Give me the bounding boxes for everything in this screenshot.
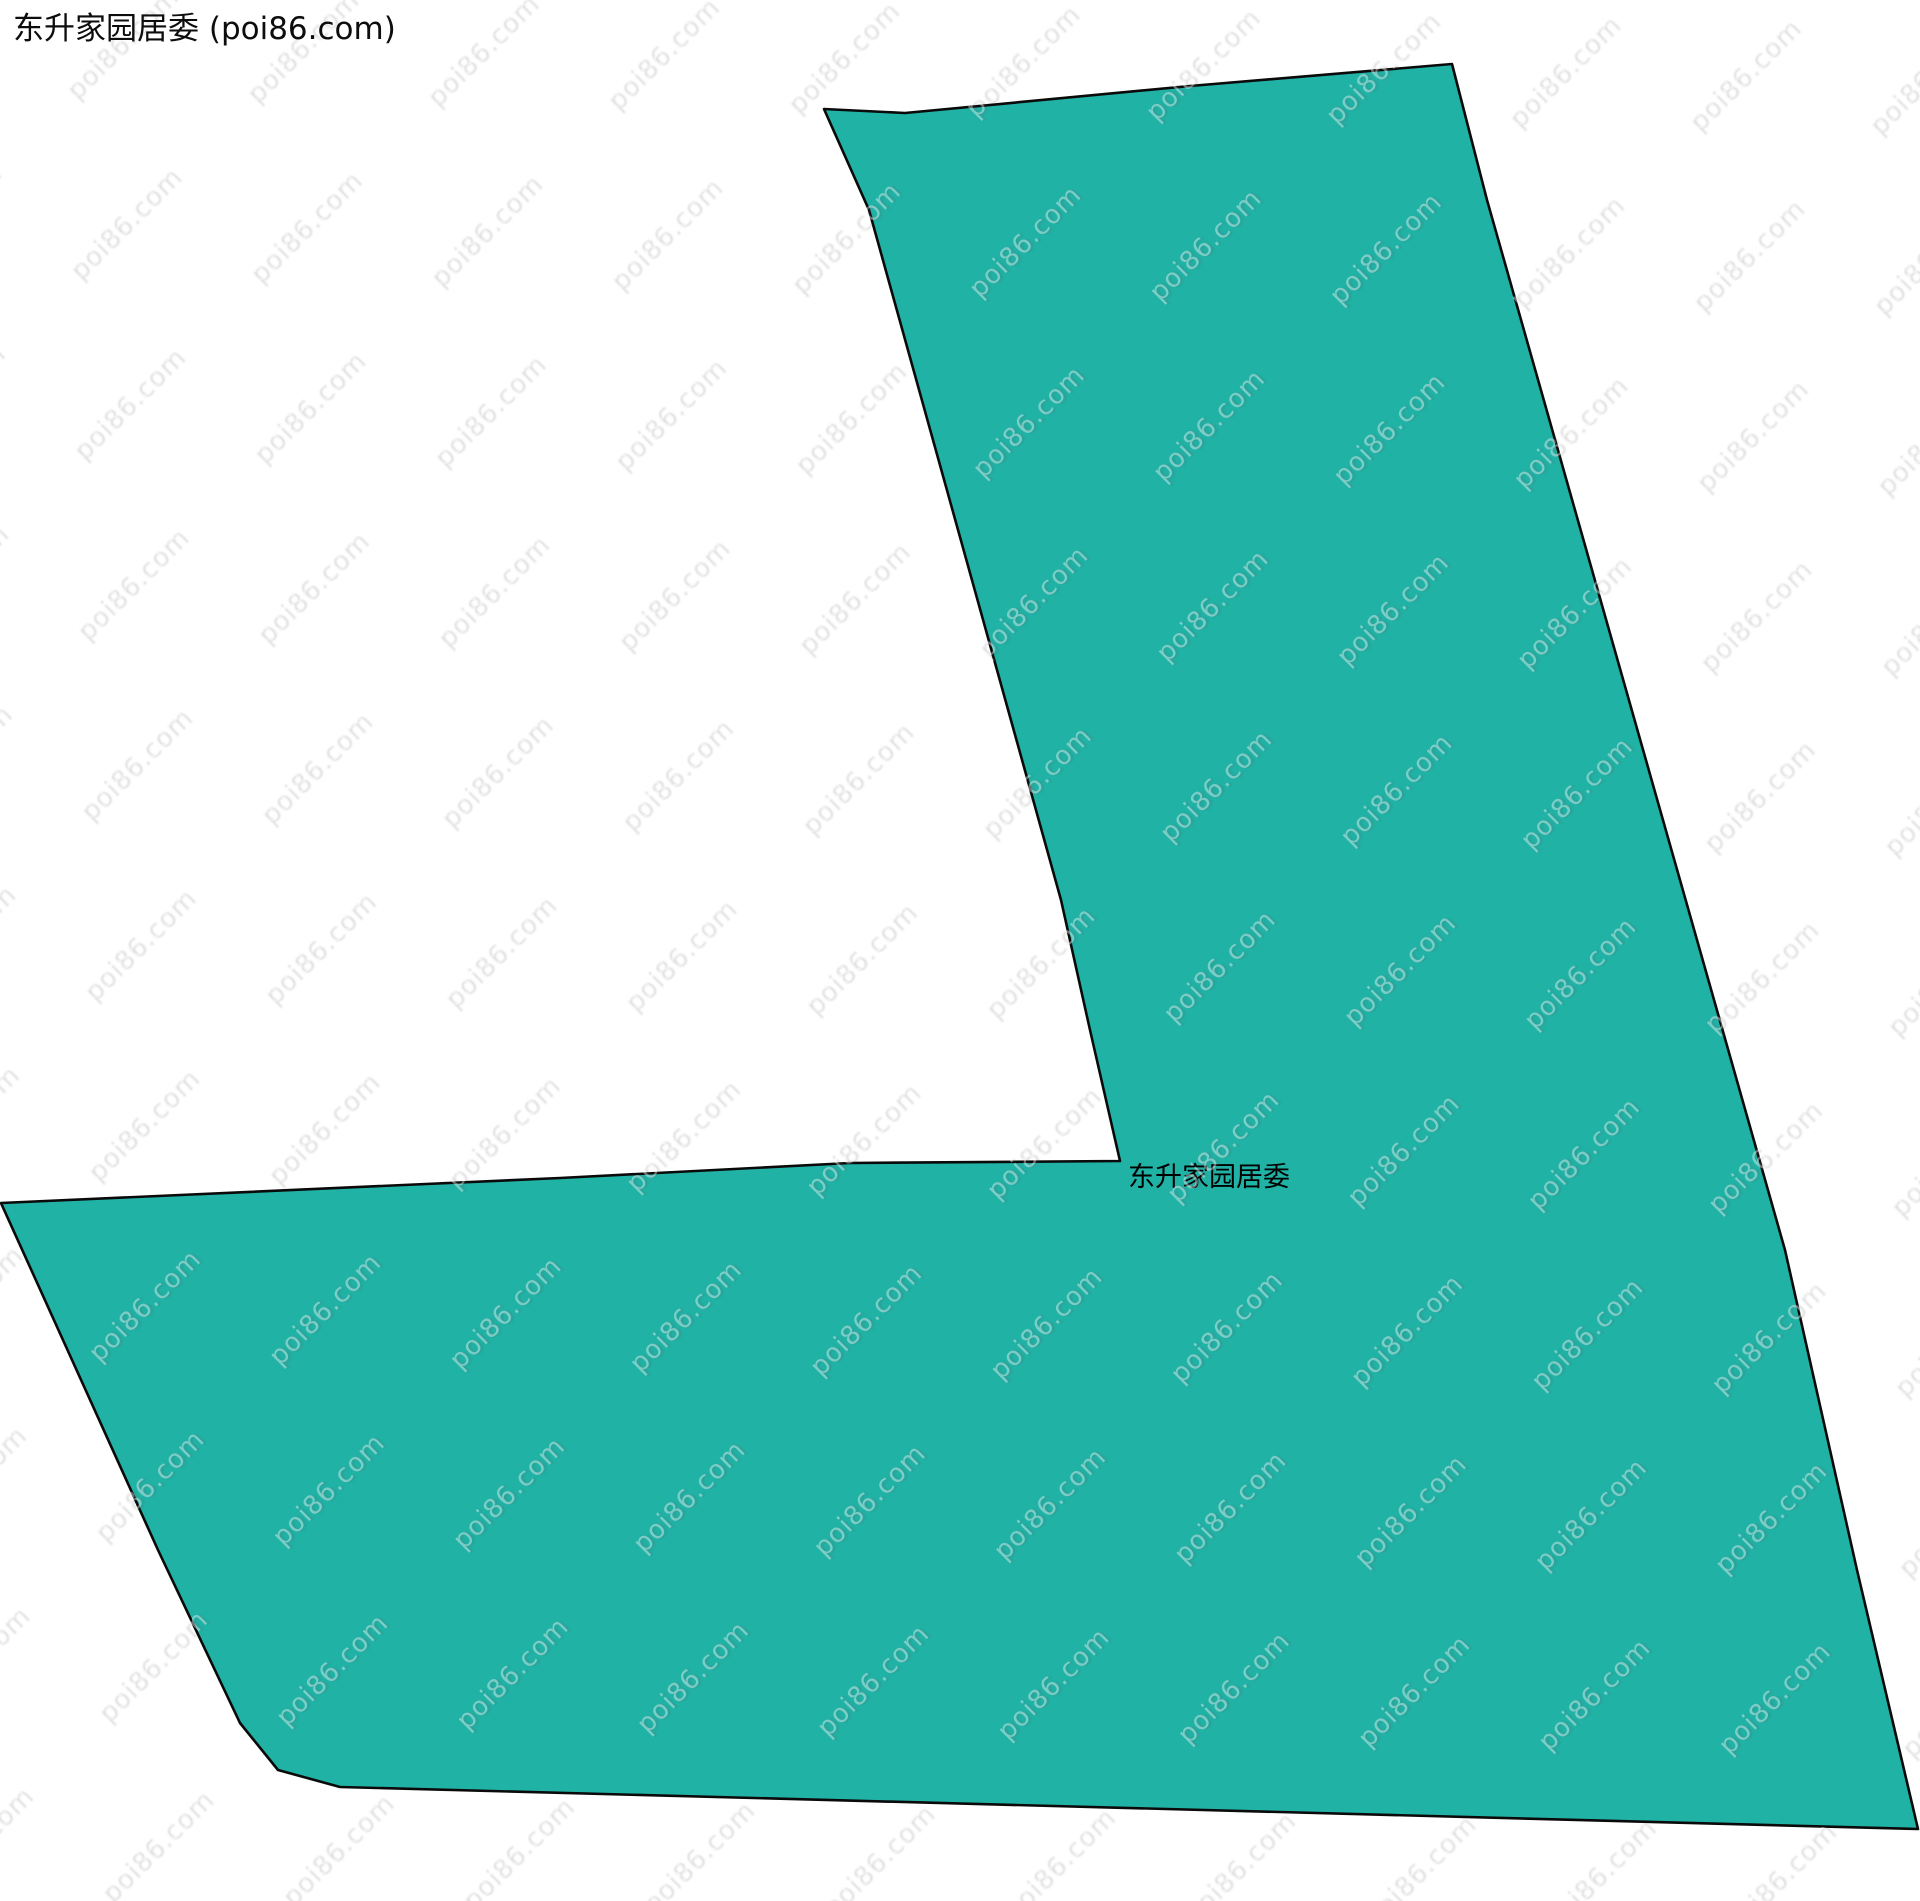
page-title: 东升家园居委 (poi86.com) xyxy=(13,11,396,48)
region-boundary-polygon xyxy=(1,64,1918,1829)
region-label: 东升家园居委 xyxy=(1128,1162,1290,1193)
map-page: 东升家园居委 poi86.compoi86.compoi86.compoi86.… xyxy=(0,0,1920,1901)
boundary-map-canvas: 东升家园居委 xyxy=(0,0,1920,1901)
